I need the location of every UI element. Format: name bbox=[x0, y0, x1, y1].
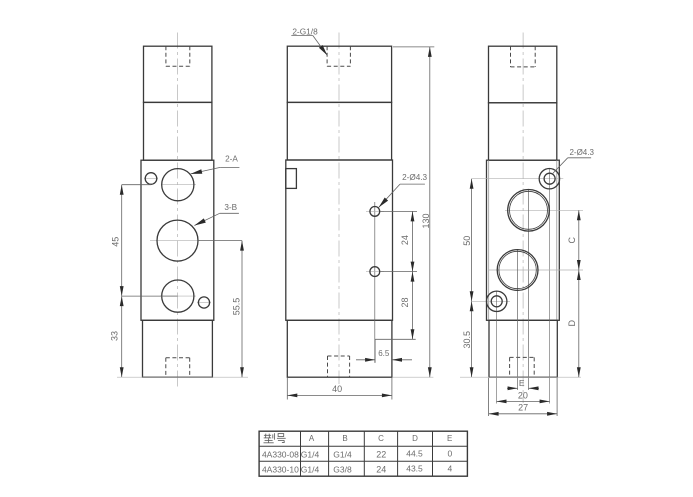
svg-text:30.5: 30.5 bbox=[462, 331, 472, 349]
svg-text:D: D bbox=[567, 319, 577, 326]
svg-text:27: 27 bbox=[518, 403, 528, 413]
svg-text:2-Ø4.3: 2-Ø4.3 bbox=[402, 173, 427, 182]
svg-text:4A330-08: 4A330-08 bbox=[262, 449, 299, 459]
svg-text:130: 130 bbox=[421, 213, 431, 228]
svg-text:G1/4: G1/4 bbox=[301, 449, 320, 459]
svg-text:C: C bbox=[567, 237, 577, 244]
svg-text:4A330-10: 4A330-10 bbox=[262, 464, 299, 474]
svg-text:43.5: 43.5 bbox=[406, 463, 423, 473]
svg-text:24: 24 bbox=[376, 464, 386, 474]
svg-text:4: 4 bbox=[448, 463, 453, 473]
svg-text:G3/8: G3/8 bbox=[333, 464, 352, 474]
svg-text:G1/4: G1/4 bbox=[333, 449, 352, 459]
svg-text:3-B: 3-B bbox=[224, 203, 237, 212]
svg-text:24: 24 bbox=[400, 235, 410, 245]
svg-text:C: C bbox=[378, 434, 384, 443]
svg-text:2-A: 2-A bbox=[225, 155, 238, 164]
svg-text:D: D bbox=[412, 434, 418, 443]
svg-text:B: B bbox=[342, 434, 347, 443]
svg-text:45: 45 bbox=[111, 237, 121, 247]
svg-text:50: 50 bbox=[462, 236, 472, 246]
svg-text:40: 40 bbox=[332, 384, 342, 394]
svg-text:55.5: 55.5 bbox=[232, 298, 242, 316]
svg-text:20: 20 bbox=[518, 391, 528, 401]
svg-text:33: 33 bbox=[110, 331, 120, 341]
svg-text:E: E bbox=[519, 378, 525, 388]
svg-text:G1/4: G1/4 bbox=[301, 464, 320, 474]
svg-text:A: A bbox=[309, 434, 315, 443]
svg-text:28: 28 bbox=[400, 297, 410, 307]
svg-text:2-G1/8: 2-G1/8 bbox=[292, 26, 318, 36]
svg-text:6.5: 6.5 bbox=[378, 349, 390, 358]
svg-text:E: E bbox=[447, 434, 452, 443]
svg-text:44.5: 44.5 bbox=[406, 448, 423, 458]
svg-text:22: 22 bbox=[376, 449, 386, 459]
svg-text:2-Ø4.3: 2-Ø4.3 bbox=[569, 148, 594, 157]
svg-text:0: 0 bbox=[448, 448, 453, 458]
